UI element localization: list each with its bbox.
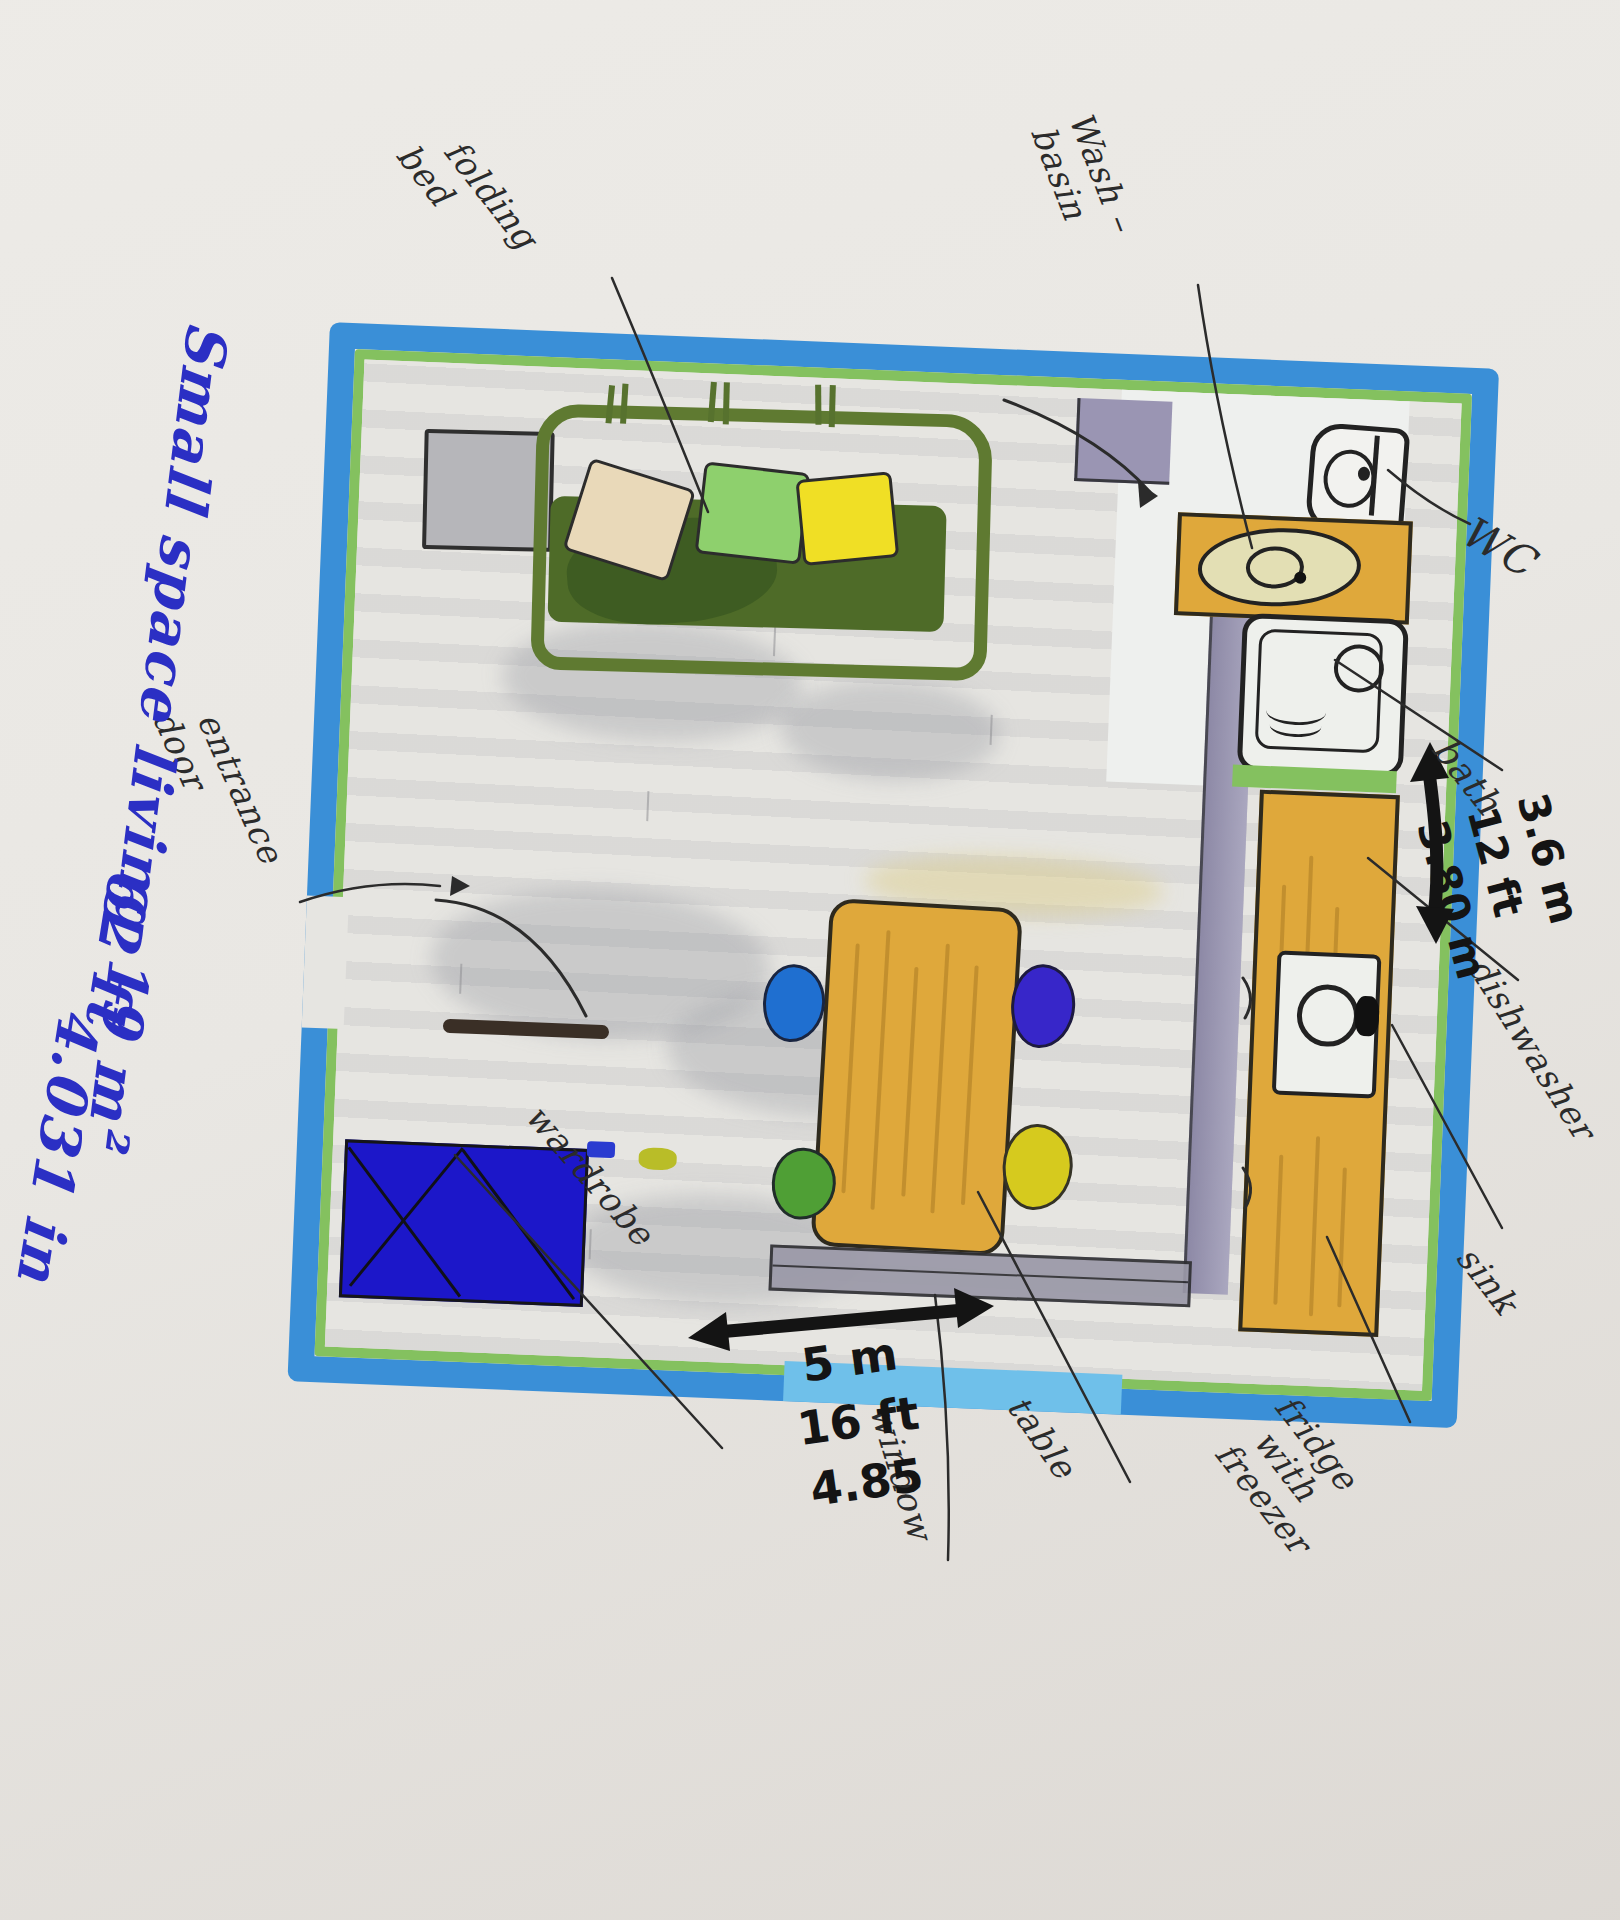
annotation-lines [0,0,1620,1920]
bottom-wall-dimensions: 5 m 16 ft 4.85 [766,1318,950,1524]
folding-bed-leader-line [612,278,708,512]
entrance-door-leaf [450,1026,602,1032]
sink-leader-line [1392,1025,1502,1228]
wash-basin-leader-line [1198,285,1252,548]
fridge-leader-line [1327,1237,1410,1422]
floor-plan-sketch: folding bed Wash – basin WC bath dishwas… [0,0,1620,1920]
bathroom-door-swing-arc [1004,400,1150,492]
cabinet-swing-mark [1243,978,1251,1018]
cabinet-swing-mark [1243,1168,1251,1208]
entrance-arrowhead [450,876,470,896]
entrance-leader-line [300,884,440,902]
bath-leader-line [1335,660,1502,770]
wc-leader-line [1388,470,1470,524]
entrance-door-swing-arc [436,900,586,1016]
bathroom-door-arrowhead [1138,482,1158,508]
